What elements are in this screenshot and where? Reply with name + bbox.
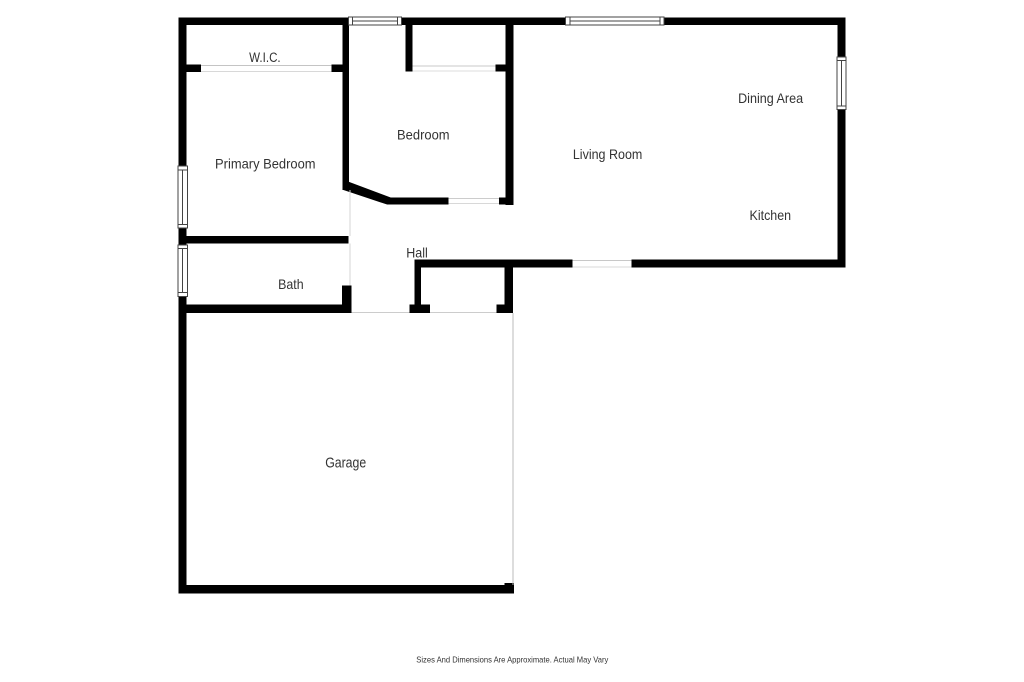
svg-text:Dining Area: Dining Area xyxy=(738,90,803,106)
svg-text:Bedroom: Bedroom xyxy=(397,127,450,143)
svg-text:Bath: Bath xyxy=(278,276,304,292)
svg-text:Kitchen: Kitchen xyxy=(750,207,792,223)
svg-text:Primary Bedroom: Primary Bedroom xyxy=(215,156,316,172)
svg-text:Living Room: Living Room xyxy=(573,146,643,162)
svg-text:Garage: Garage xyxy=(325,455,366,472)
svg-text:Sizes And Dimensions Are Appro: Sizes And Dimensions Are Approximate. Ac… xyxy=(416,655,609,665)
svg-text:Hall: Hall xyxy=(406,245,428,261)
svg-text:W.I.C.: W.I.C. xyxy=(249,50,281,65)
